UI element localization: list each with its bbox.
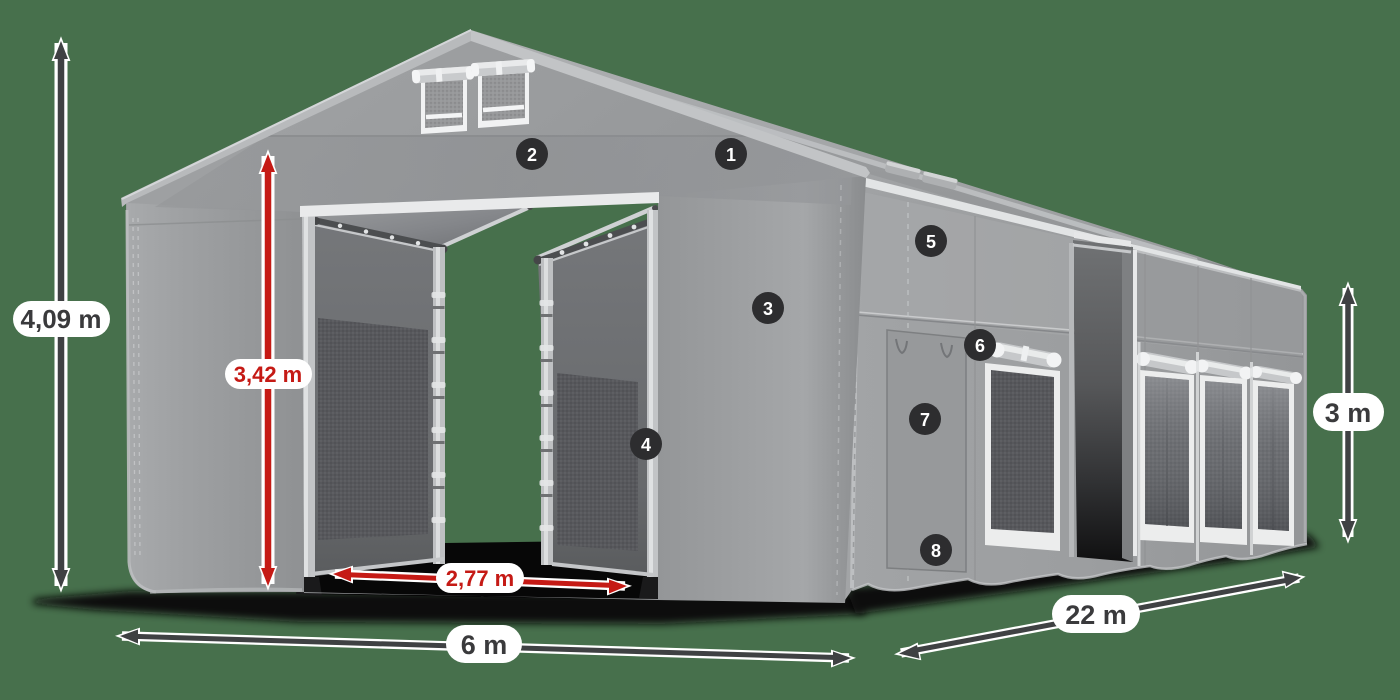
svg-text:3 m: 3 m bbox=[1325, 398, 1372, 428]
svg-text:4: 4 bbox=[641, 435, 651, 455]
svg-text:8: 8 bbox=[931, 541, 941, 561]
svg-text:1: 1 bbox=[726, 145, 736, 165]
svg-text:6 m: 6 m bbox=[461, 630, 508, 660]
svg-text:7: 7 bbox=[920, 410, 930, 430]
svg-text:6: 6 bbox=[975, 336, 985, 356]
svg-text:3,42 m: 3,42 m bbox=[234, 362, 303, 387]
svg-text:3: 3 bbox=[763, 299, 773, 319]
svg-text:22 m: 22 m bbox=[1065, 600, 1127, 630]
svg-text:2,77 m: 2,77 m bbox=[446, 566, 515, 591]
svg-text:4,09 m: 4,09 m bbox=[21, 304, 102, 334]
svg-text:5: 5 bbox=[926, 232, 936, 252]
svg-text:2: 2 bbox=[527, 145, 537, 165]
